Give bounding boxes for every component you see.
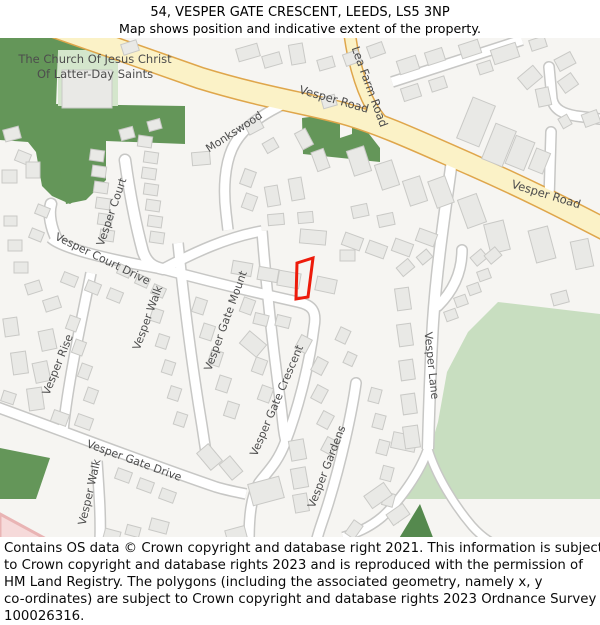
building xyxy=(557,73,578,94)
building xyxy=(340,250,355,261)
building xyxy=(444,308,459,322)
building xyxy=(3,317,19,337)
building xyxy=(91,165,106,178)
building xyxy=(125,524,141,537)
building xyxy=(219,456,243,480)
green-patch-bottom-left xyxy=(0,448,50,499)
building xyxy=(248,476,285,506)
building xyxy=(554,52,576,72)
building xyxy=(159,488,177,503)
building xyxy=(215,375,231,393)
building xyxy=(528,226,556,263)
building xyxy=(145,199,160,212)
street-label-0: The Church Of Jesus Christ xyxy=(17,52,172,66)
building xyxy=(93,181,108,194)
building xyxy=(149,518,169,534)
building xyxy=(38,329,57,352)
building xyxy=(143,183,158,196)
building xyxy=(236,43,261,62)
building xyxy=(141,167,156,180)
building xyxy=(570,238,593,269)
building xyxy=(60,272,78,288)
building xyxy=(415,228,437,247)
building xyxy=(29,228,45,242)
building xyxy=(257,266,279,282)
building xyxy=(115,468,133,483)
building xyxy=(335,327,351,344)
building xyxy=(77,363,92,380)
building xyxy=(251,357,267,375)
building xyxy=(429,76,448,92)
building xyxy=(43,296,62,312)
copyright-footer: Contains OS data © Crown copyright and d… xyxy=(0,537,600,625)
building xyxy=(143,151,158,164)
building xyxy=(402,176,427,206)
footer-line: to Crown copyright and database rights 2… xyxy=(4,558,596,575)
building xyxy=(103,528,121,537)
building xyxy=(288,43,305,65)
building xyxy=(262,52,283,68)
building xyxy=(391,238,413,257)
building xyxy=(11,351,29,375)
building xyxy=(311,385,329,404)
building xyxy=(191,297,207,315)
footer-line: Contains OS data © Crown copyright and d… xyxy=(4,541,596,558)
building xyxy=(290,467,308,489)
building xyxy=(147,215,162,228)
building xyxy=(167,386,181,402)
building xyxy=(1,390,17,404)
building xyxy=(2,170,17,183)
building xyxy=(518,65,543,89)
building xyxy=(377,212,395,227)
footer-line: co-ordinates) are subject to Crown copyr… xyxy=(4,592,596,609)
building xyxy=(467,282,482,296)
building xyxy=(477,60,494,75)
building xyxy=(223,401,239,419)
building xyxy=(83,387,98,404)
map-svg: The Church Of Jesus ChristOf Latter-Day … xyxy=(0,38,600,537)
building xyxy=(8,240,22,251)
building xyxy=(239,297,255,315)
building xyxy=(395,287,412,311)
property-map-page: 54, VESPER GATE CRESCENT, LEEDS, LS5 3NP… xyxy=(0,0,600,625)
building xyxy=(191,151,210,166)
building xyxy=(457,193,486,228)
building xyxy=(477,268,492,282)
building xyxy=(262,137,279,153)
map-canvas: The Church Of Jesus ChristOf Latter-Day … xyxy=(0,38,600,537)
building xyxy=(241,193,257,211)
building xyxy=(366,42,385,59)
building xyxy=(155,334,169,350)
building xyxy=(239,331,266,357)
building xyxy=(137,135,152,148)
building xyxy=(149,231,164,244)
building xyxy=(264,185,280,207)
building xyxy=(89,149,104,162)
building xyxy=(26,162,40,178)
building xyxy=(173,412,187,428)
building xyxy=(25,280,43,295)
building xyxy=(454,294,469,308)
page-subtitle: Map shows position and indicative extent… xyxy=(0,20,600,36)
building xyxy=(376,439,390,455)
building xyxy=(416,249,432,265)
page-title: 54, VESPER GATE CRESCENT, LEEDS, LS5 3NP xyxy=(0,0,600,20)
building xyxy=(299,229,326,245)
building xyxy=(372,413,386,429)
pink-area-bottom-left xyxy=(0,514,48,537)
building xyxy=(529,38,548,51)
building xyxy=(317,411,335,430)
building xyxy=(275,314,291,328)
building xyxy=(374,160,399,190)
footer-line: HM Land Registry. The polygons (includin… xyxy=(4,575,596,592)
building xyxy=(268,213,285,225)
map-header: 54, VESPER GATE CRESCENT, LEEDS, LS5 3NP… xyxy=(0,0,600,38)
street-label-1: Of Latter-Day Saints xyxy=(37,67,153,81)
building xyxy=(397,323,414,347)
building xyxy=(240,168,257,187)
building xyxy=(14,262,28,273)
building xyxy=(288,439,306,461)
building xyxy=(341,232,363,251)
building xyxy=(400,84,421,102)
building xyxy=(288,177,305,201)
building xyxy=(74,414,93,431)
building xyxy=(380,465,394,481)
building xyxy=(298,211,314,223)
building xyxy=(225,526,247,537)
building xyxy=(401,393,418,415)
building xyxy=(399,359,416,381)
building xyxy=(403,425,421,449)
building xyxy=(551,290,570,306)
building xyxy=(106,288,123,303)
building xyxy=(317,56,335,71)
building xyxy=(368,387,382,403)
building xyxy=(161,360,175,376)
building xyxy=(343,351,357,366)
building xyxy=(137,478,155,493)
building xyxy=(315,276,337,294)
building xyxy=(4,216,17,226)
footer-line: 100026316. xyxy=(4,609,596,625)
building xyxy=(365,240,387,259)
building xyxy=(396,258,415,276)
building xyxy=(351,203,369,218)
